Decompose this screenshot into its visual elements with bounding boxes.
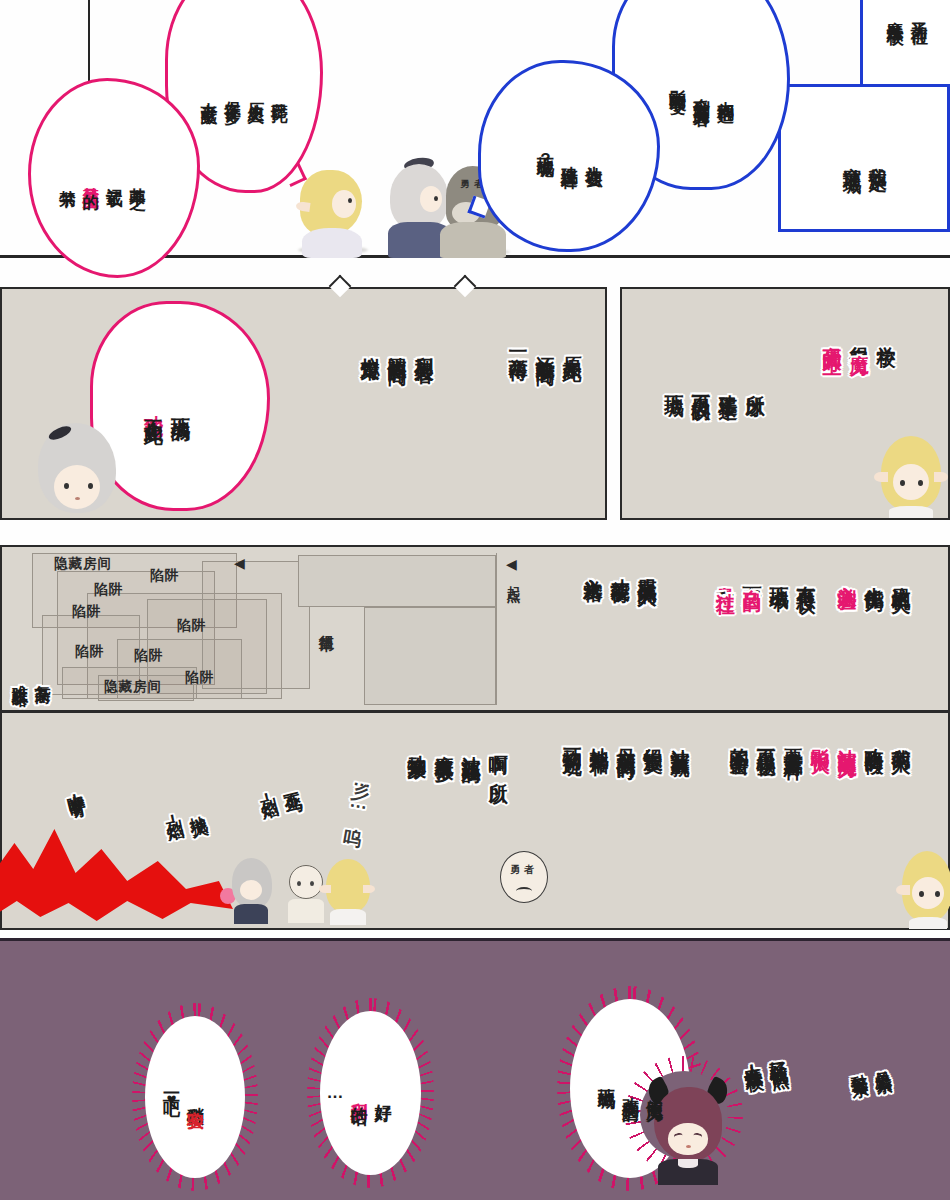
panel-epilogue: 依照魔力 改变构造的 地下城吗… 好好 利用的话 … 稍微实验 一下吧♥ 总是紧… (0, 938, 950, 1200)
bubble-forbidden: 其中不乏 记载了 禁忌魔法的 禁书 (28, 78, 200, 278)
map-label-start: 起点 (503, 575, 523, 577)
map-label-trap: 陷阱 (134, 647, 163, 665)
hero-head-label: 勇者 (500, 863, 548, 877)
bubble-use-text: 好好 利用的话 … (322, 1083, 419, 1104)
panel-isee: 原来如此 还能争取时间 一举两得 利用入侵者 被困住的时间 拟定对策 地下城的 … (0, 287, 607, 520)
elf-ear (896, 885, 910, 895)
bubble-experiment: 稍微实验 一下吧♥ (132, 1003, 258, 1191)
bubble-function: 地下城的 功能不止如此 (90, 301, 270, 511)
maze-arrow-icon: ◀ (234, 555, 246, 571)
dialogue-built: 所以才 建造了这个 不可思议的 地下城 (660, 379, 768, 389)
dialogue-qualify: 克服试炼的人 才能获得 入学资格 (579, 563, 660, 575)
bubble-function-text: 地下城的 功能不止如此 (140, 400, 221, 412)
map-label-simple: 很简单 (316, 623, 337, 626)
character-elf-head (880, 436, 942, 518)
elf-ear (874, 472, 888, 482)
shout-hellhound: 地狱犬 烈焰! (158, 800, 210, 834)
dialogue-entry-test: 这里的机关 也能作为 入学测验 (833, 571, 941, 581)
elf-ear (319, 885, 331, 893)
gutter-tail-2 (454, 275, 477, 298)
bubble-experiment-text: 稍微实验 一下吧♥ (159, 1084, 231, 1111)
map-label-hidden-room-bottom: 隐藏房间 (104, 678, 162, 696)
map-label-trap: 陷阱 (185, 669, 214, 687)
dialogue-isee: 原来如此 还能争取时间 一举两得 (504, 341, 585, 353)
dialogue-plan: 利用入侵者 被困住的时间 拟定对策 (356, 341, 437, 353)
map-label-trap: 陷阱 (75, 643, 104, 661)
dialogue-target: 学校 很容易被魔力 高强的人盯上 (818, 331, 926, 343)
map-label-complex: 复杂而 难以攻略 (8, 672, 53, 680)
narration-box: 我们决定 穿过地下城 (778, 84, 950, 232)
map-label-hidden-room-top: 隐藏房间 (54, 555, 112, 573)
bubble-forbidden-text: 其中不乏 记载了 禁忌魔法的 禁书 (55, 173, 172, 183)
character-elf-head-right (902, 851, 950, 930)
character-elf-mini (324, 859, 372, 925)
map-label-trap: 陷阱 (177, 617, 206, 635)
elf-ear (934, 472, 948, 482)
character-bald-mini (286, 865, 326, 925)
character-silver-mini (224, 858, 272, 924)
dialogue-face-yourself: 在不可思议 地下城中 面对自己的 力量和过往 (711, 571, 846, 581)
narration-corner-text: 为了前往 魔法学校 (882, 8, 930, 16)
bubble-sabbato-text: 萨巴托 历史悠久 保存了许多 古老文献 (197, 88, 291, 98)
dialogue-raid: 我们两个人 攻略的时候 波波菈的魔力 影响很大 要辛苦应对各种 不可思议生物 的… (725, 733, 941, 747)
mutter-clingy: 总是紧紧 黏着母亲… (843, 1055, 895, 1091)
character-hero-head: 勇者 (500, 851, 550, 907)
shout-school: 好了我们快点 去魔法学校! (736, 1045, 791, 1085)
map-label-trap: 陷阱 (72, 603, 101, 621)
bubble-why-text: 为什么要 建造这种 地下城呢? (533, 142, 605, 171)
red-splash (0, 821, 233, 921)
shout-phoenix: 不死鸟 烈焰! (252, 778, 305, 814)
character-silver-head (38, 423, 116, 518)
bubble-use: 好好 利用的话 … (307, 998, 434, 1188)
panel-school: 学校 很容易被魔力 高强的人盯上 所以才 建造了这个 不可思议的 地下城 (620, 287, 950, 520)
panel-map: 隐藏房间 陷阱 陷阱 陷阱 陷阱 陷阱 陷阱 陷阱 隐藏房间 ◀ ◀ 起点 很简… (0, 545, 950, 713)
map-label-trap: 陷阱 (150, 567, 179, 585)
bubble-why: 为什么要 建造这种 地下城呢? (478, 60, 660, 252)
start-arrow-icon: ◀ (506, 556, 518, 572)
map-label-trap: 陷阱 (94, 581, 123, 599)
gutter-tail-1 (329, 275, 352, 298)
dialogue-animals: 啊啊,所以 波波菈小姐的 魔法有很多 动物形象 (403, 740, 511, 771)
manga-page: 勇者 为了前往 魔法学校 我们决定 穿过地下城 内部构造 会受到高魔力者 影响而… (0, 0, 950, 1200)
bubble-dungeon-text: 依照魔力 改变构造的 地下城吗… (594, 1074, 666, 1103)
hero-frown (516, 887, 532, 895)
character-elf-eldest (296, 170, 366, 258)
scream: 咿呀呀呀! (59, 781, 89, 815)
bubble-structure-text: 内部构造 会受到高魔力者 影响而改变… (665, 76, 737, 107)
dialogue-lonely: 波波菈从前就 很怕寂寞 母亲和我出门时 她就常常和 动物们一起玩 (558, 733, 693, 747)
panel-intro: 勇者 为了前往 魔法学校 我们决定 穿过地下城 内部构造 会受到高魔力者 影响而… (0, 0, 950, 258)
elf-ear (295, 201, 310, 212)
sfx-tremble: 彡……呜 (343, 766, 376, 818)
elf-ear (363, 885, 375, 893)
panel-popola: 我们两个人 攻略的时候 波波菈的魔力 影响很大 要辛苦应对各种 不可思议生物 的… (0, 713, 950, 930)
narration-box-text: 我们决定 穿过地下城 (838, 153, 889, 163)
